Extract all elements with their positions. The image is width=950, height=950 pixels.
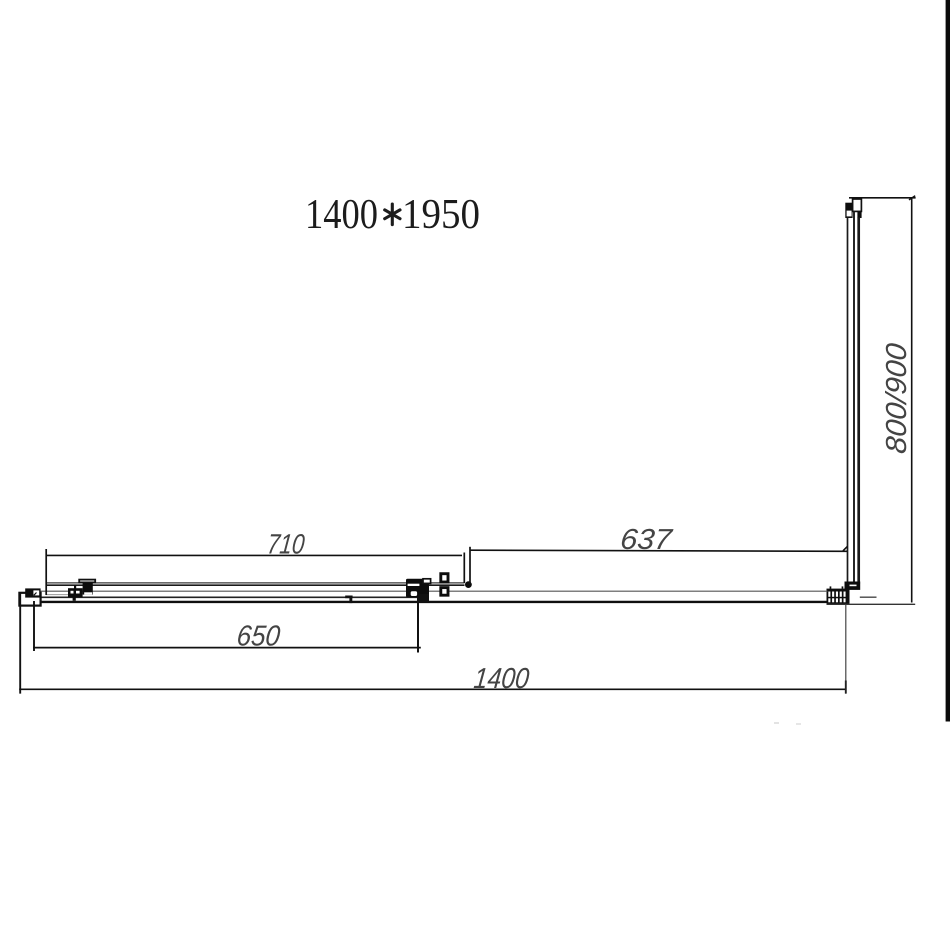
svg-text:1400: 1400 (472, 663, 530, 695)
svg-text:1400: 1400 (305, 192, 378, 238)
svg-text:800/900: 800/900 (881, 342, 913, 455)
svg-text:637: 637 (619, 524, 675, 556)
svg-text:650: 650 (235, 621, 281, 653)
svg-text:1950: 1950 (402, 192, 480, 238)
svg-text:710: 710 (266, 529, 307, 560)
